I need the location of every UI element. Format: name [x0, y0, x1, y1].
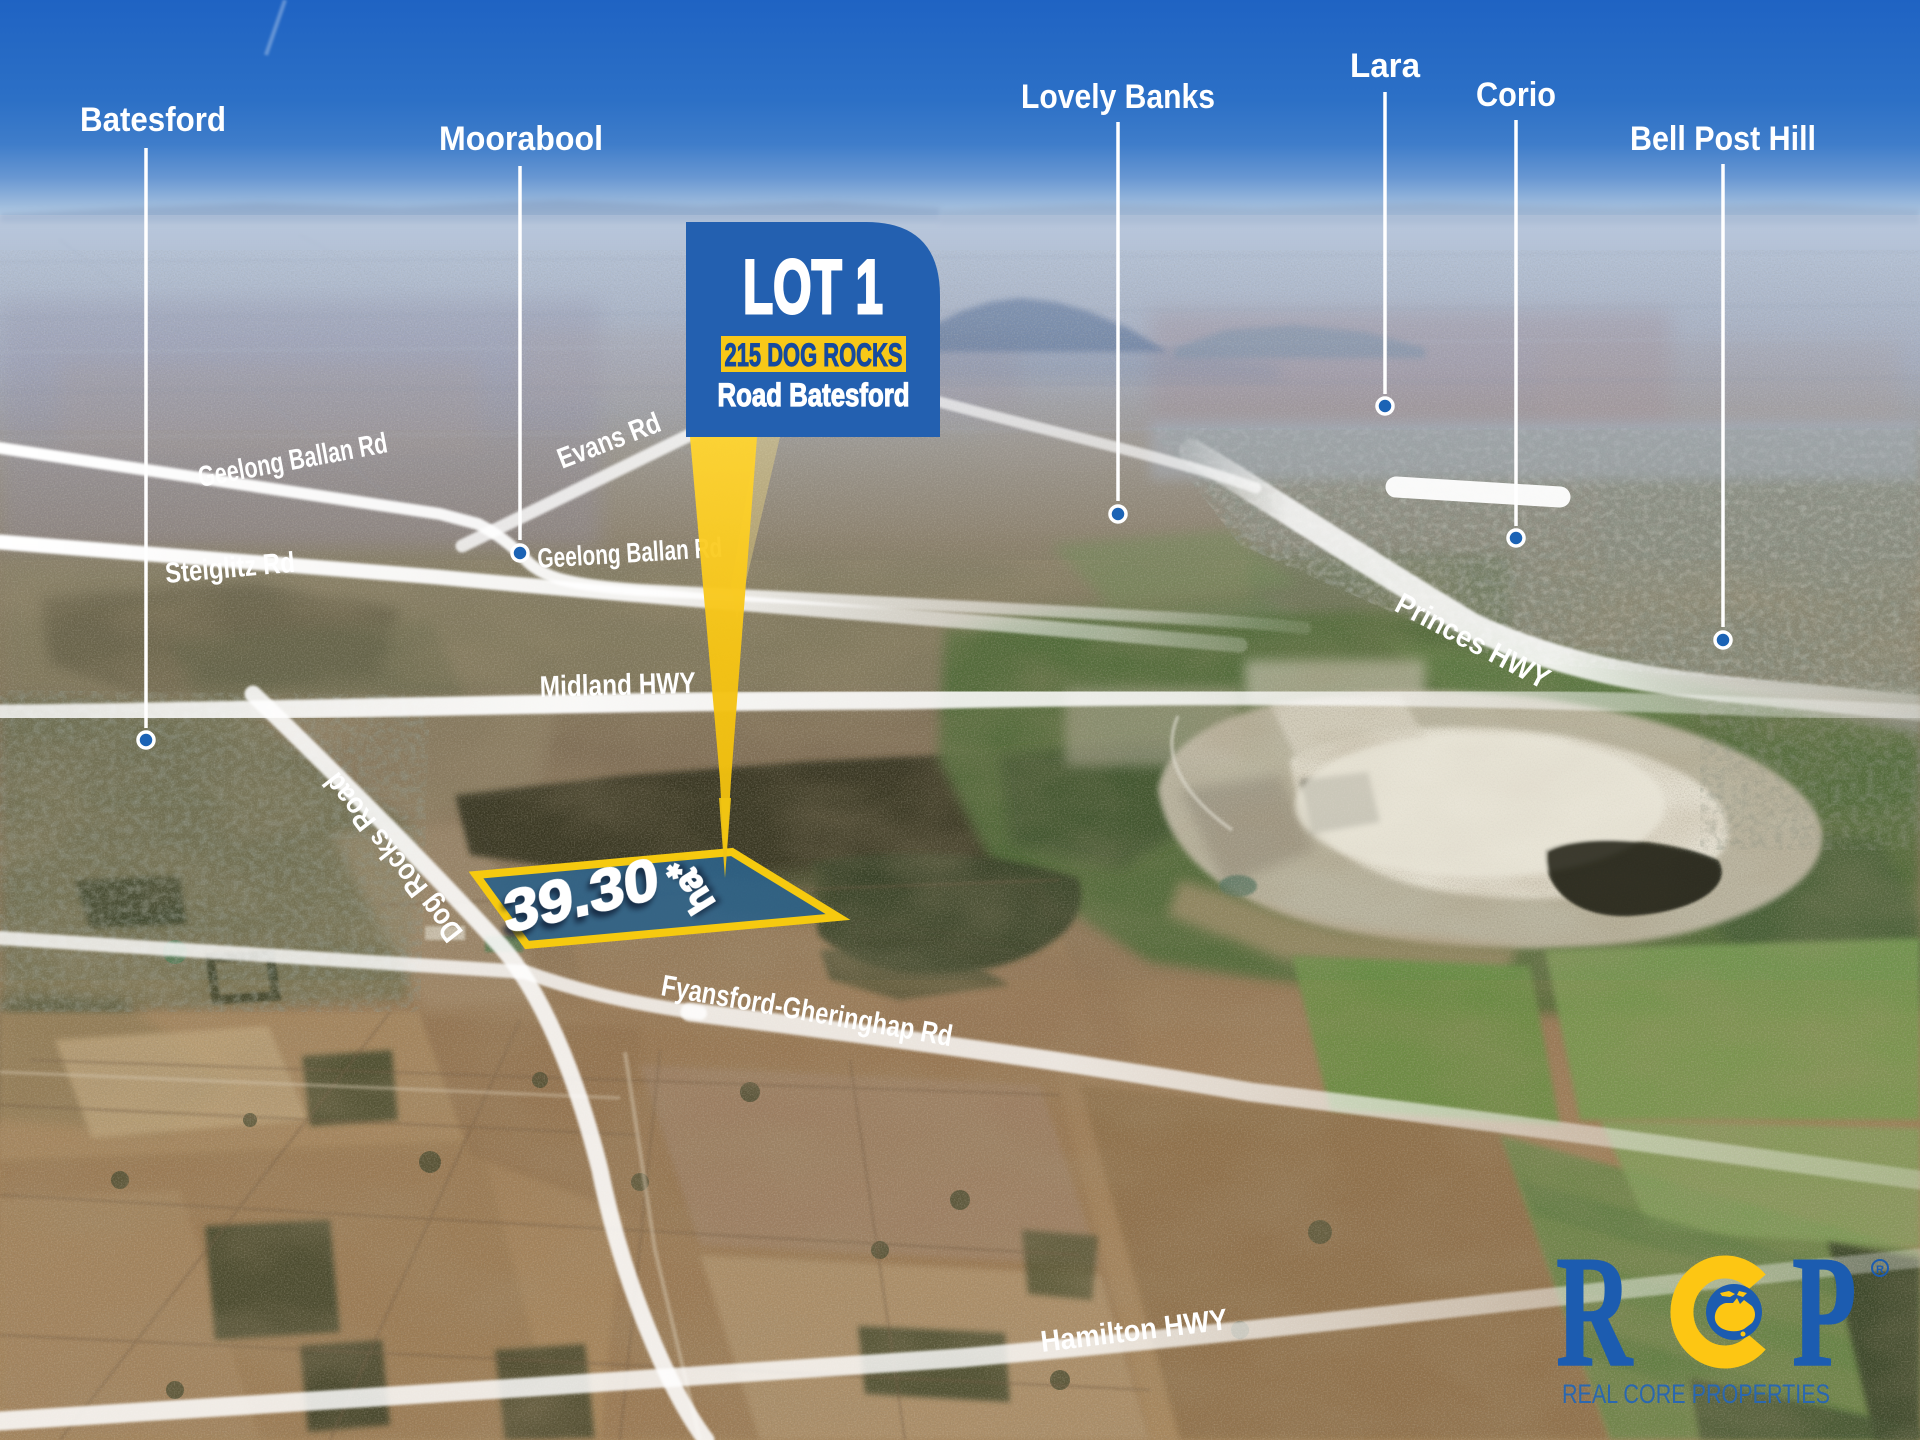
svg-text:Moorabool: Moorabool	[439, 120, 603, 158]
svg-text:REAL CORE PROPERTIES: REAL CORE PROPERTIES	[1562, 1379, 1830, 1409]
svg-text:215 DOG ROCKS: 215 DOG ROCKS	[725, 337, 903, 373]
svg-text:Batesford: Batesford	[80, 101, 226, 139]
svg-text:Road Batesford: Road Batesford	[718, 377, 910, 413]
svg-text:Midland HWY: Midland HWY	[539, 667, 696, 704]
svg-text:R: R	[1556, 1223, 1634, 1400]
svg-text:Corio: Corio	[1476, 76, 1556, 114]
svg-text:Bell Post Hill: Bell Post Hill	[1630, 120, 1816, 158]
svg-text:Lara: Lara	[1350, 47, 1421, 85]
svg-text:LOT 1: LOT 1	[743, 245, 883, 330]
svg-text:P: P	[1792, 1223, 1857, 1400]
svg-text:Lovely Banks: Lovely Banks	[1021, 78, 1215, 116]
svg-text:R: R	[1876, 1264, 1884, 1276]
